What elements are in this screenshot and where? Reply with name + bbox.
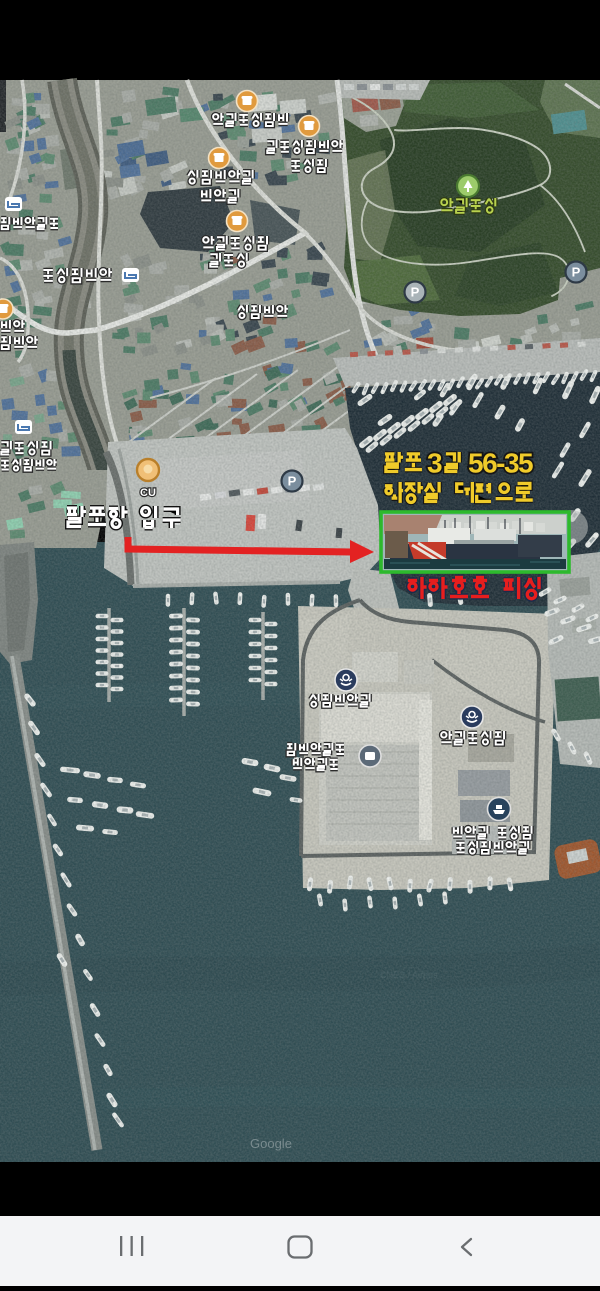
svg-text:56-35: 56-35 [468, 448, 533, 479]
svg-text:P: P [411, 285, 420, 300]
svg-text:P: P [288, 474, 297, 489]
svg-text:CU: CU [140, 487, 156, 499]
svg-text:3: 3 [427, 448, 442, 479]
svg-text:P: P [572, 265, 581, 280]
